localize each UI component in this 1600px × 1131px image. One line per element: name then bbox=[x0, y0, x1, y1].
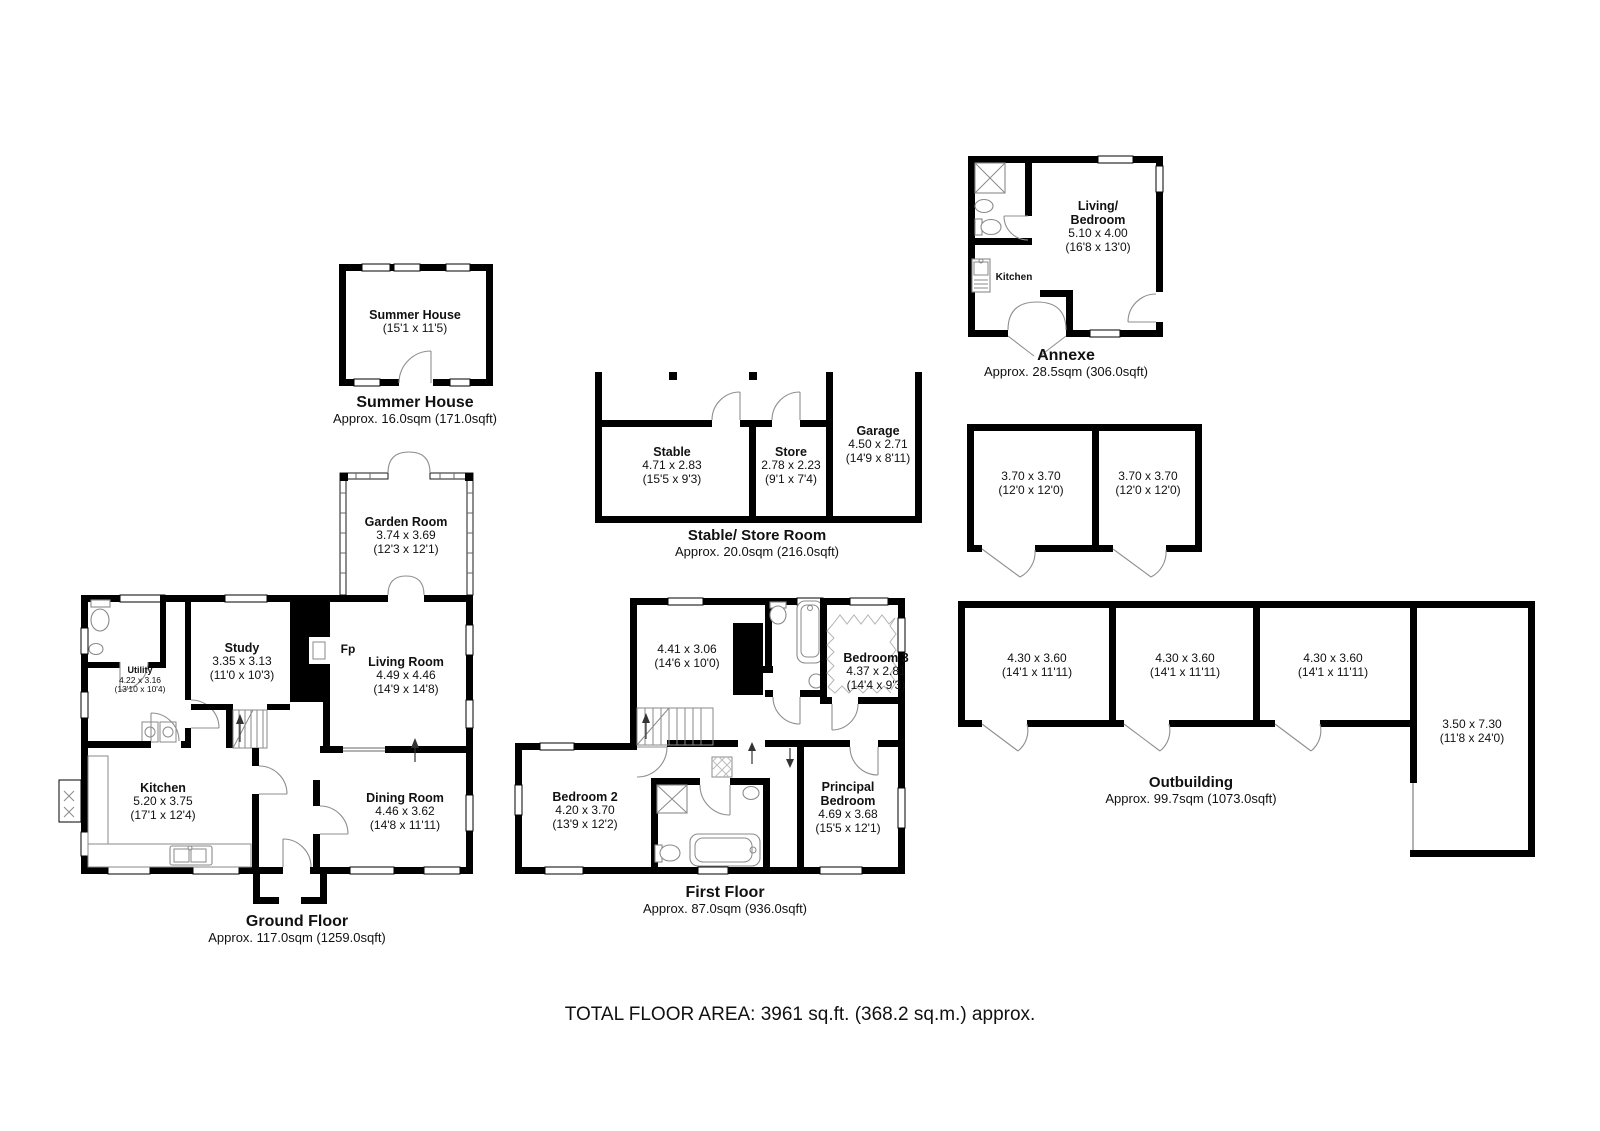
room-dims-ft: (17'1 x 12'4) bbox=[130, 809, 195, 823]
room-name: Kitchen bbox=[996, 271, 1033, 285]
room-dims-m: 4.30 x 3.60 bbox=[1298, 652, 1368, 666]
room-label-bedroom-3: Bedroom 3 4.37 x 2.81 (14'4 x 9'3) bbox=[843, 651, 908, 692]
room-dims-m: 3.50 x 7.30 bbox=[1440, 718, 1504, 732]
room-label-living-room: Living Room 4.49 x 4.46 (14'9 x 14'8) bbox=[368, 655, 444, 696]
room-dims-ft: (14'9 x 8'11) bbox=[846, 452, 910, 466]
first-floor-stairs bbox=[637, 708, 713, 745]
room-dims-ft: (14'9 x 14'8) bbox=[368, 683, 444, 697]
room-dims-m: 4.49 x 4.46 bbox=[368, 669, 444, 683]
room-label-ff-landing: 4.41 x 3.06 (14'6 x 10'0) bbox=[654, 643, 719, 670]
room-label-study: Study 3.35 x 3.13 (11'0 x 10'3) bbox=[210, 641, 274, 682]
room-dims-ft: (12'3 x 12'1) bbox=[365, 543, 448, 557]
building-title: Annexe bbox=[984, 347, 1148, 365]
room-dims-ft: (14'4 x 9'3) bbox=[843, 679, 908, 693]
room-name: Kitchen bbox=[130, 781, 195, 795]
floor-area: Approx. 87.0sqm (936.0sqft) bbox=[643, 902, 807, 916]
room-dims-ft: (15'5 x 9'3) bbox=[642, 473, 701, 487]
room-dims-m: 3.74 x 3.69 bbox=[365, 529, 448, 543]
room-label-garden-store-1: 3.70 x 3.70 (12'0 x 12'0) bbox=[998, 470, 1063, 497]
building-area: Approx. 20.0sqm (216.0sqft) bbox=[675, 545, 839, 559]
building-title: Stable/ Store Room bbox=[675, 527, 839, 545]
room-label-garden-room: Garden Room 3.74 x 3.69 (12'3 x 12'1) bbox=[365, 515, 448, 556]
room-label-annexe-living: Living/ Bedroom 5.10 x 4.00 (16'8 x 13'0… bbox=[1065, 199, 1130, 254]
building-area: Approx. 16.0sqm (171.0sqft) bbox=[333, 412, 497, 426]
room-dims-ft: (14'6 x 10'0) bbox=[654, 657, 719, 671]
room-dims-m: 4.46 x 3.62 bbox=[366, 805, 444, 819]
floor-title: First Floor bbox=[643, 884, 807, 902]
room-dims-ft: (14'8 x 11'11) bbox=[366, 819, 444, 833]
building-title: Summer House bbox=[333, 394, 497, 412]
room-name-line2: Bedroom bbox=[1065, 213, 1130, 227]
title-stable-store: Stable/ Store Room Approx. 20.0sqm (216.… bbox=[675, 527, 839, 559]
room-dims-ft: (16'8 x 13'0) bbox=[1065, 241, 1130, 255]
room-dims-m: 4.30 x 3.60 bbox=[1002, 652, 1072, 666]
room-name: Garage bbox=[846, 424, 910, 438]
room-dims-m: 2.78 x 2.23 bbox=[761, 459, 820, 473]
room-name: Bedroom 2 bbox=[552, 790, 617, 804]
room-dims-ft: (13'9 x 12'2) bbox=[552, 818, 617, 832]
room-label-outbuilding-2: 4.30 x 3.60 (14'1 x 11'11) bbox=[1150, 652, 1220, 679]
room-dims-m: 5.10 x 4.00 bbox=[1065, 227, 1130, 241]
room-label-summer-house: Summer House (15'1 x 11'5) bbox=[369, 308, 461, 336]
room-dims-m: 3.70 x 3.70 bbox=[998, 470, 1063, 484]
room-dims-ft: (14'1 x 11'11) bbox=[1002, 666, 1072, 680]
room-dims-m: 3.35 x 3.13 bbox=[210, 655, 274, 669]
room-dims-ft: (14'1 x 11'11) bbox=[1150, 666, 1220, 680]
room-name-line2: Bedroom bbox=[815, 794, 880, 808]
room-dims-ft: (12'0 x 12'0) bbox=[1115, 484, 1180, 498]
room-dims-m: 4.41 x 3.06 bbox=[654, 643, 719, 657]
floorplan-page: Summer House (15'1 x 11'5) Summer House … bbox=[0, 0, 1600, 1131]
room-name: Living Room bbox=[368, 655, 444, 669]
room-dims-m: 5.20 x 3.75 bbox=[130, 795, 195, 809]
fireplace-text: Fp bbox=[341, 643, 356, 657]
room-dims-m: 4.37 x 2.81 bbox=[843, 665, 908, 679]
room-name: Bedroom 3 bbox=[843, 651, 908, 665]
room-dims-ft: (12'0 x 12'0) bbox=[998, 484, 1063, 498]
building-area: Approx. 28.5sqm (306.0sqft) bbox=[984, 365, 1148, 379]
title-ground-floor: Ground Floor Approx. 117.0sqm (1259.0sqf… bbox=[208, 913, 386, 945]
floorplan-drawing bbox=[0, 0, 1600, 1131]
garden-stores-plan bbox=[967, 424, 1202, 577]
room-name: Stable bbox=[642, 445, 701, 459]
room-dims-ft: (11'0 x 10'3) bbox=[210, 669, 274, 683]
room-label-stable: Stable 4.71 x 2.83 (15'5 x 9'3) bbox=[642, 445, 701, 486]
room-name-line1: Living/ bbox=[1065, 199, 1130, 213]
room-label-store: Store 2.78 x 2.23 (9'1 x 7'4) bbox=[761, 445, 820, 486]
room-name-line1: Principal bbox=[815, 780, 880, 794]
room-dims-ft: (14'1 x 11'11) bbox=[1298, 666, 1368, 680]
room-label-principal-bedroom: Principal Bedroom 4.69 x 3.68 (15'5 x 12… bbox=[815, 780, 880, 835]
room-dims-m: 4.20 x 3.70 bbox=[552, 804, 617, 818]
floor-title: Ground Floor bbox=[208, 913, 386, 931]
room-dims-ft: (9'1 x 7'4) bbox=[761, 473, 820, 487]
room-dims-m: 3.70 x 3.70 bbox=[1115, 470, 1180, 484]
room-dims-m: 4.69 x 3.68 bbox=[815, 808, 880, 822]
room-dims-ft: (13'10 x 10'4) bbox=[115, 685, 166, 695]
room-dims-m: 4.30 x 3.60 bbox=[1150, 652, 1220, 666]
room-name: Store bbox=[761, 445, 820, 459]
title-summer-house: Summer House Approx. 16.0sqm (171.0sqft) bbox=[333, 394, 497, 426]
annexe-plan bbox=[968, 156, 1163, 356]
room-label-outbuilding-1: 4.30 x 3.60 (14'1 x 11'11) bbox=[1002, 652, 1072, 679]
room-dims-m: 4.71 x 2.83 bbox=[642, 459, 701, 473]
room-name: Study bbox=[210, 641, 274, 655]
room-name: Summer House bbox=[369, 308, 461, 322]
total-floor-area: TOTAL FLOOR AREA: 3961 sq.ft. (368.2 sq.… bbox=[565, 1004, 1036, 1026]
title-first-floor: First Floor Approx. 87.0sqm (936.0sqft) bbox=[643, 884, 807, 916]
room-name: Garden Room bbox=[365, 515, 448, 529]
title-annexe: Annexe Approx. 28.5sqm (306.0sqft) bbox=[984, 347, 1148, 379]
room-label-kitchen: Kitchen 5.20 x 3.75 (17'1 x 12'4) bbox=[130, 781, 195, 822]
fireplace-label: Fp bbox=[341, 643, 356, 657]
room-name: Dining Room bbox=[366, 791, 444, 805]
room-label-garden-store-2: 3.70 x 3.70 (12'0 x 12'0) bbox=[1115, 470, 1180, 497]
building-title: Outbuilding bbox=[1105, 774, 1276, 792]
room-dims-m: 4.50 x 2.71 bbox=[846, 438, 910, 452]
ground-floor-stairs bbox=[233, 710, 267, 748]
room-label-dining-room: Dining Room 4.46 x 3.62 (14'8 x 11'11) bbox=[366, 791, 444, 832]
room-label-annexe-kitchen: Kitchen bbox=[996, 271, 1033, 285]
floor-area: Approx. 117.0sqm (1259.0sqft) bbox=[208, 931, 386, 945]
room-label-garage: Garage 4.50 x 2.71 (14'9 x 8'11) bbox=[846, 424, 910, 465]
room-label-outbuilding-tall: 3.50 x 7.30 (11'8 x 24'0) bbox=[1440, 718, 1504, 745]
room-label-utility: Utility 4.22 x 3.16 (13'10 x 10'4) bbox=[115, 666, 166, 695]
room-label-bedroom-2: Bedroom 2 4.20 x 3.70 (13'9 x 12'2) bbox=[552, 790, 617, 831]
room-label-outbuilding-3: 4.30 x 3.60 (14'1 x 11'11) bbox=[1298, 652, 1368, 679]
room-dims-ft: (11'8 x 24'0) bbox=[1440, 732, 1504, 746]
building-area: Approx. 99.7sqm (1073.0sqft) bbox=[1105, 792, 1276, 806]
room-dims-ft: (15'1 x 11'5) bbox=[369, 322, 461, 336]
title-outbuilding: Outbuilding Approx. 99.7sqm (1073.0sqft) bbox=[1105, 774, 1276, 806]
room-dims-ft: (15'5 x 12'1) bbox=[815, 822, 880, 836]
